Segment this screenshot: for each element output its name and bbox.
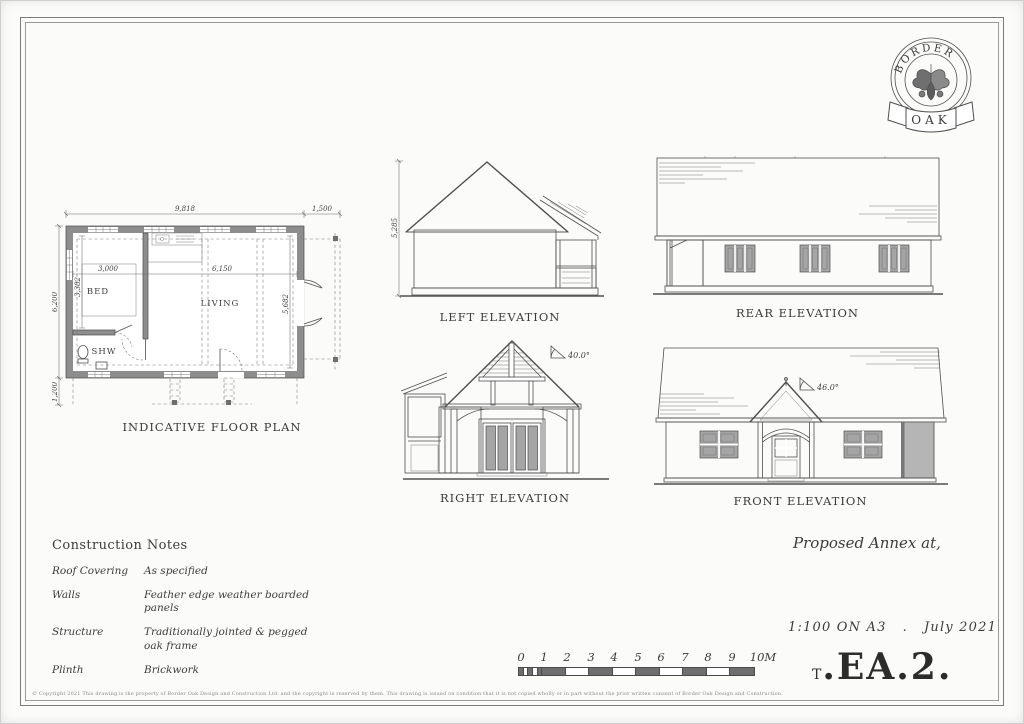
note-row-structure: Structure Traditionally jointed & pegged…	[52, 626, 332, 652]
note-row-roof-covering: Roof Covering As specified	[52, 565, 332, 578]
note-row-walls: Walls Feather edge weather boarded panel…	[52, 589, 332, 615]
border-oak-logo: BORDER OAK	[876, 30, 986, 140]
pitch-label-front: 46.0°	[816, 383, 839, 392]
scale-tick: 8	[704, 650, 711, 664]
left-elevation-caption: LEFT ELEVATION	[390, 310, 610, 324]
scale-tick: 1	[540, 650, 547, 664]
scale-tick: 9	[728, 650, 735, 664]
scale-tick: 6	[657, 650, 664, 664]
dim-overall-depth: 6,200	[52, 291, 59, 312]
dim-living-depth: 5,682	[282, 293, 290, 314]
room-label-living: LIVING	[201, 299, 240, 309]
drawing-scale: 1:100 ON A3	[788, 620, 887, 635]
note-label: Structure	[52, 626, 144, 652]
scale-tick: 3	[587, 650, 594, 664]
note-value: As specified	[144, 565, 309, 578]
rear-elevation: REAR ELEVATION	[645, 148, 950, 318]
scale-date-separator: .	[903, 620, 908, 635]
project-title: Proposed Annex at,	[793, 534, 941, 552]
pitch-label-right: 40.0°	[567, 351, 590, 360]
drawing-ref-prefix: T	[812, 667, 822, 683]
scale-tick: 0	[517, 650, 524, 664]
note-label: Walls	[52, 589, 144, 615]
scale-bar: 0 1 2 3 4 5 6 7 8 9 10M	[518, 650, 788, 684]
drawing-reference: T .EA.2.	[812, 646, 952, 688]
drawing-ref-number: .EA.2.	[822, 646, 952, 688]
scale-bar-segments	[518, 667, 755, 676]
note-row-plinth: Plinth Brickwork	[52, 664, 332, 677]
front-elevation: 46.0° FRONT ELEVATION	[648, 336, 953, 506]
room-label-bed: BED	[87, 287, 109, 297]
scale-tick: 10M	[750, 650, 776, 664]
floor-plan-caption: INDICATIVE FLOOR PLAN	[52, 420, 372, 434]
right-elevation-drawing: 40.0°	[395, 333, 615, 485]
scale-and-date: 1:100 ON A3 . July 2021	[788, 620, 997, 635]
note-value: Traditionally jointed & pegged oak frame	[144, 626, 309, 652]
note-label: Plinth	[52, 664, 144, 677]
floor-plan: BED LIVING SHW 9,818 1,500 6,200 1,200	[52, 192, 372, 442]
right-elevation: 40.0°	[395, 333, 615, 503]
dim-veranda-projection: 1,200	[52, 381, 59, 402]
rear-elevation-drawing	[645, 148, 950, 300]
room-label-shw: SHW	[92, 347, 117, 357]
copyright-note: © Copyright 2021 This drawing is the pro…	[32, 691, 984, 697]
construction-notes: Construction Notes Roof Covering As spec…	[52, 538, 332, 688]
dim-bed-width: 3,000	[98, 265, 119, 273]
note-value: Brickwork	[144, 664, 309, 677]
dim-bed-depth: 3,382	[74, 276, 82, 297]
note-value: Feather edge weather boarded panels	[144, 589, 309, 615]
dim-porch-projection: 1,500	[312, 205, 333, 213]
note-label: Roof Covering	[52, 565, 144, 578]
scale-tick: 2	[563, 650, 570, 664]
front-elevation-drawing: 46.0°	[648, 336, 953, 488]
scale-tick: 4	[610, 650, 617, 664]
dim-living-width: 6,150	[212, 265, 233, 273]
scale-bar-numbers: 0 1 2 3 4 5 6 7 8 9 10M	[518, 650, 788, 665]
border-oak-logo-icon: BORDER OAK	[876, 30, 986, 140]
right-elevation-caption: RIGHT ELEVATION	[395, 491, 615, 505]
left-elevation-drawing: 5,285	[390, 152, 610, 304]
construction-notes-title: Construction Notes	[52, 538, 332, 553]
left-elevation: 5,285 LEFT ELEVATION	[390, 152, 610, 322]
dim-overall-width: 9,818	[175, 205, 196, 213]
scale-tick: 7	[681, 650, 688, 664]
rear-elevation-caption: REAR ELEVATION	[645, 306, 950, 320]
drawing-date: July 2021	[924, 620, 997, 635]
front-elevation-caption: FRONT ELEVATION	[648, 494, 953, 508]
logo-banner-text: OAK	[911, 113, 950, 127]
floor-plan-drawing: BED LIVING SHW 9,818 1,500 6,200 1,200	[52, 192, 372, 414]
dim-ridge-height: 5,285	[391, 217, 399, 238]
scale-tick: 5	[634, 650, 641, 664]
